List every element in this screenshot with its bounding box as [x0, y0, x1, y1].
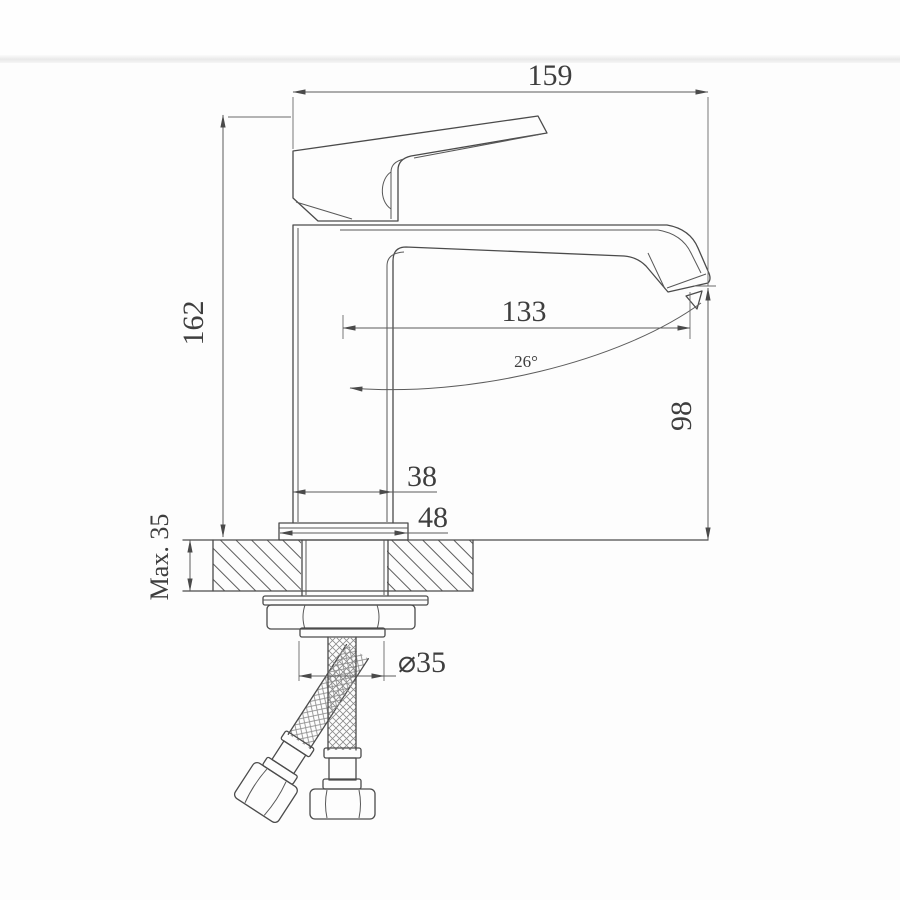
dim-max-thickness-label: Max. 35: [145, 514, 174, 601]
dim-overall-width: 159: [293, 59, 708, 286]
dim-max-thickness: Max. 35: [145, 514, 190, 601]
dim-body-depth: 38: [293, 460, 437, 493]
dim-body-depth-label: 38: [407, 460, 437, 493]
diagonal-flare: [262, 757, 298, 785]
dim-stream-angle-label: 26°: [514, 352, 538, 371]
countertop-section: [183, 540, 708, 591]
lever-outline: [293, 116, 547, 221]
diagonal-hose-assembly: [233, 637, 380, 824]
locknut-facet-left: [303, 605, 305, 629]
vertical-nut-facet-left: [326, 790, 328, 818]
locknut: [267, 605, 415, 629]
spout-aerator: [686, 291, 702, 309]
dim-base-width: 48: [280, 501, 448, 534]
counter-hatch-left: [213, 540, 301, 591]
body-inner-right: [387, 252, 404, 522]
dim-base-width-label: 48: [418, 501, 448, 534]
diagonal-ferrule: [272, 741, 306, 774]
faucet-handle: [293, 116, 547, 221]
counter-hatch-right: [387, 540, 473, 591]
vertical-hex-nut: [310, 789, 375, 819]
diagonal-nut-facet-right: [264, 782, 287, 816]
technical-drawing-page: { "page": { "background": "#fdfdfd", "se…: [0, 0, 900, 900]
dim-overall-height: 162: [177, 115, 291, 537]
supply-hoses: [233, 596, 428, 824]
faucet-dimension-drawing: 159 162 133 26° 98 3: [0, 0, 900, 900]
locknut-facet-right: [377, 605, 379, 629]
vertical-nut-facet-right: [359, 790, 361, 818]
dim-overall-height-label: 162: [177, 301, 210, 346]
spout-outline: [293, 225, 710, 523]
lever-facet: [296, 202, 352, 219]
dim-hole-diameter-label: ⌀35: [398, 646, 446, 679]
dim-outlet-height: 98: [665, 286, 716, 540]
dim-spout-reach: 133: [343, 292, 690, 339]
lever-underside-inner: [414, 134, 542, 158]
dim-hole-diameter: ⌀35: [299, 641, 446, 681]
dim-spout-reach-label: 133: [502, 295, 547, 328]
base-flange: [279, 523, 408, 540]
vertical-ferrule: [329, 758, 356, 780]
cartridge-dome: [382, 172, 391, 209]
vertical-braid: [328, 637, 356, 750]
dim-outlet-height-label: 98: [665, 401, 698, 431]
dim-overall-width-label: 159: [528, 59, 573, 92]
